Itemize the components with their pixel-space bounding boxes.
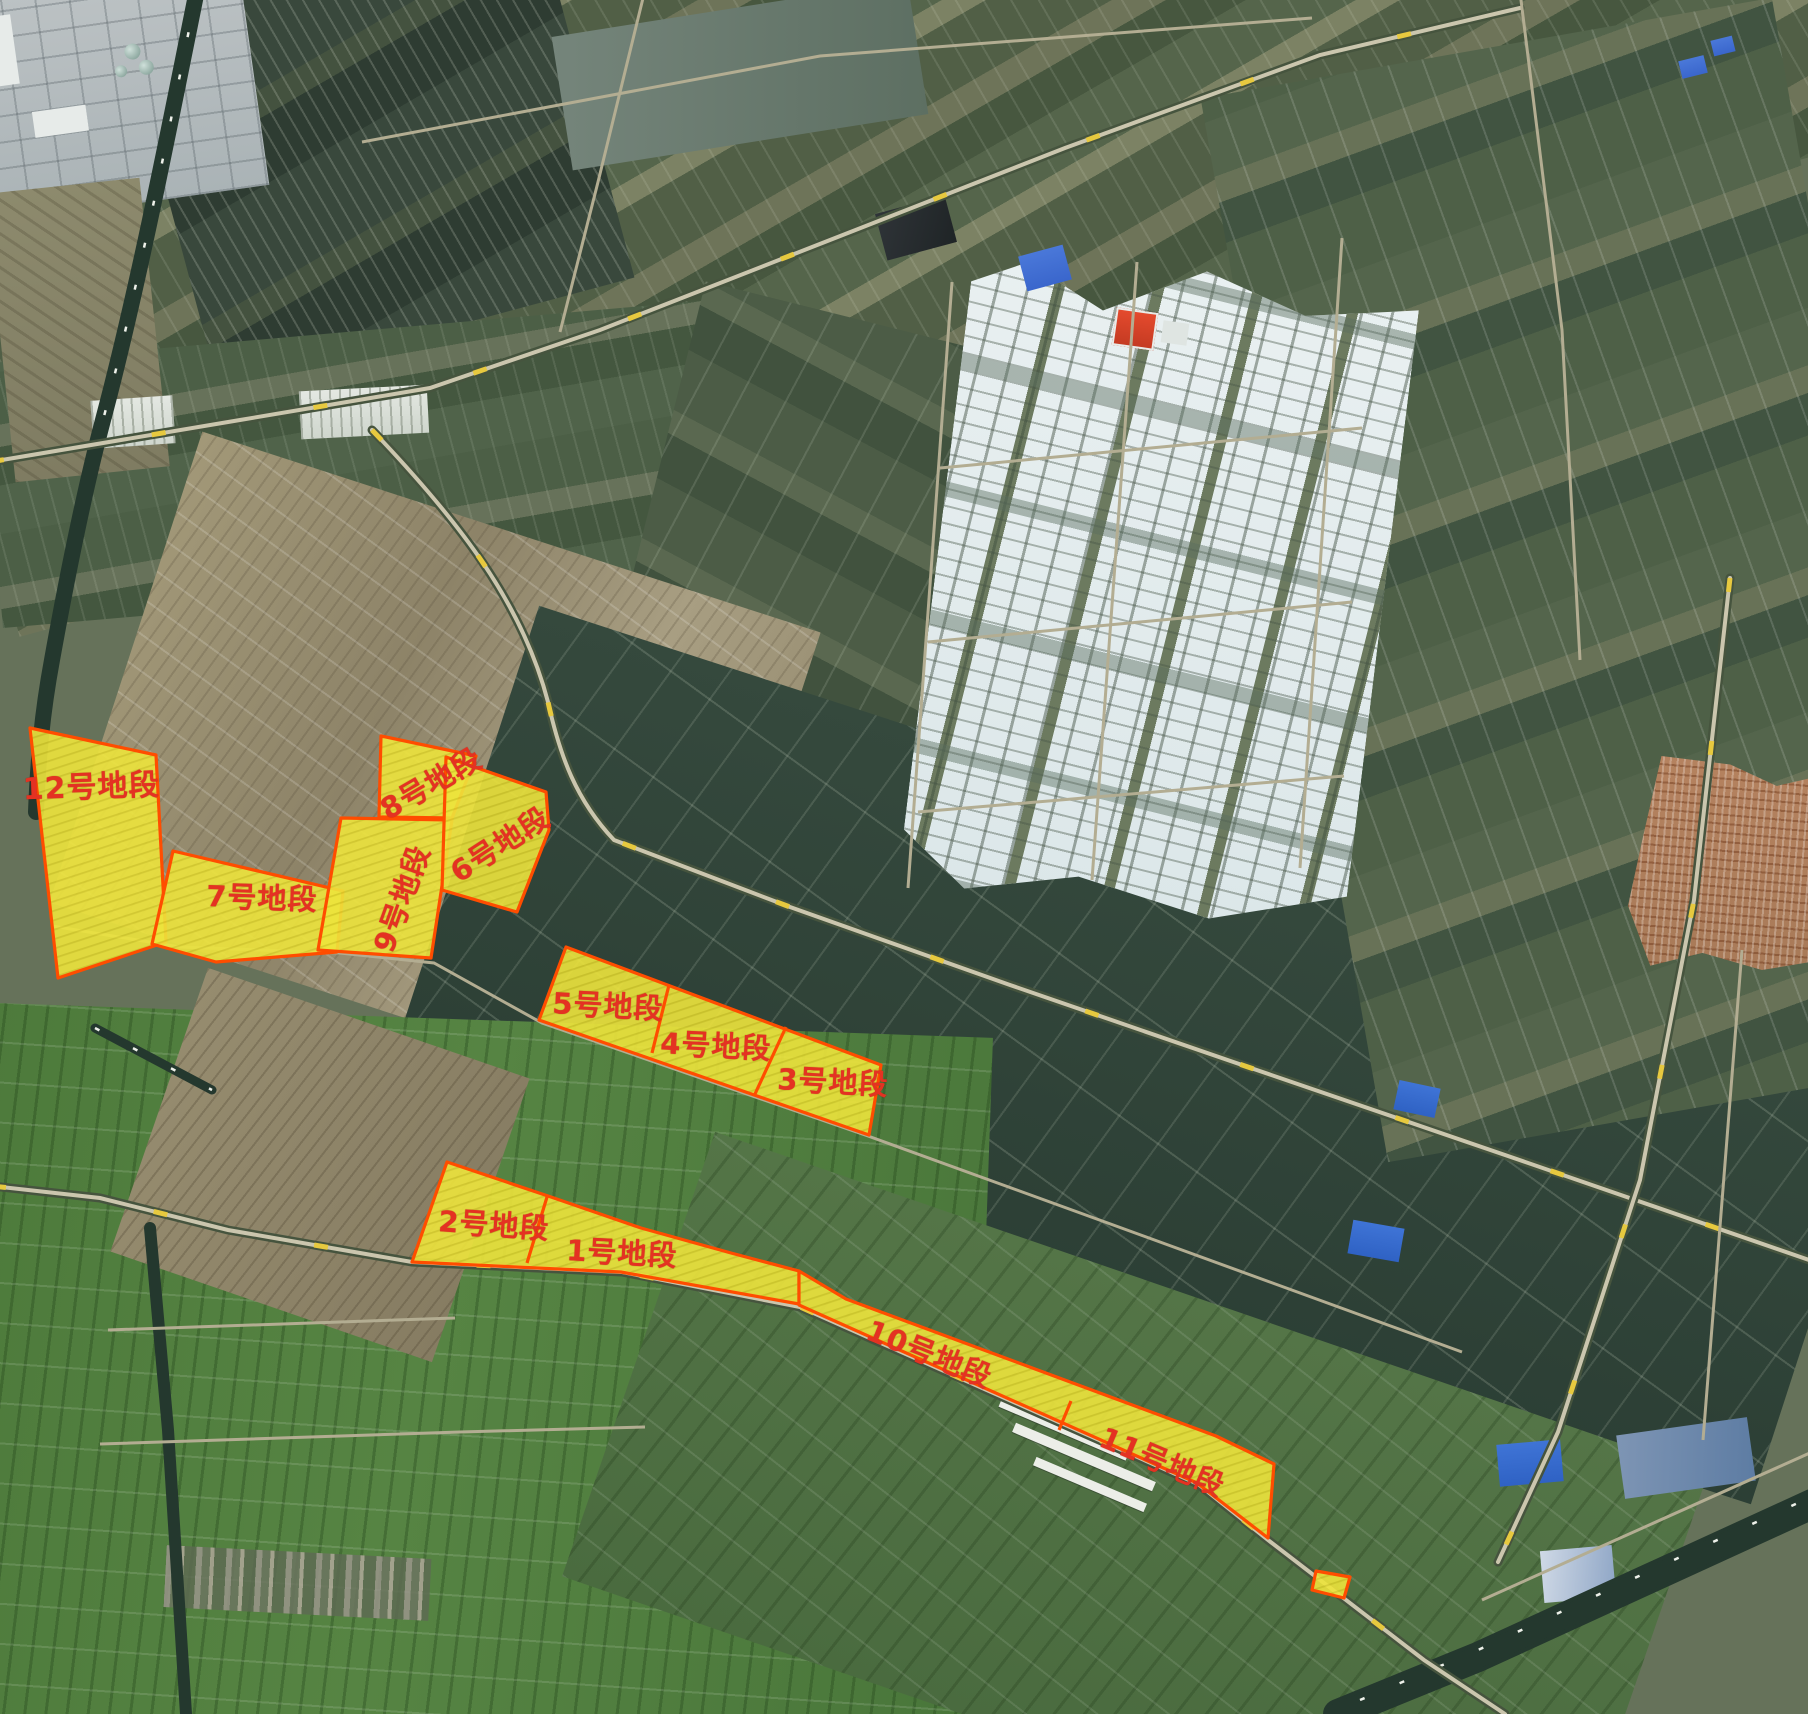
parcel-label-2: 2号地段 [437,1198,551,1248]
road [1092,262,1137,880]
satellite-map: 12号地段 8号地段 6号地段 7号地段 9号地段 5号地段 4号地段 3号地段… [0,0,1808,1714]
road [940,428,1362,468]
parcel-label-3: 3号地段 [776,1056,889,1104]
small-unlabeled-parcel [1312,1571,1350,1598]
map-linework [0,0,1808,1714]
highway [372,430,1808,1262]
road [908,282,952,888]
road [918,776,1344,812]
canal [150,1228,186,1714]
parcel-label-4: 4号地段 [659,1020,772,1068]
road [1520,0,1580,660]
road [362,18,1312,142]
road [1703,950,1742,1440]
highway [0,8,1520,462]
road [928,602,1352,642]
canal [95,1028,212,1090]
river [1338,1504,1808,1714]
parcel-label-1: 1号地段 [565,1227,678,1275]
canal [36,0,197,812]
road [1498,578,1730,1562]
road [100,1427,645,1444]
parcel-label-5: 5号地段 [551,980,664,1028]
road [560,0,645,332]
road-network [0,0,1808,1714]
parcel-label-12: 12号地段 [22,760,160,809]
road [1300,238,1342,868]
parcel-label-7: 7号地段 [206,873,319,919]
